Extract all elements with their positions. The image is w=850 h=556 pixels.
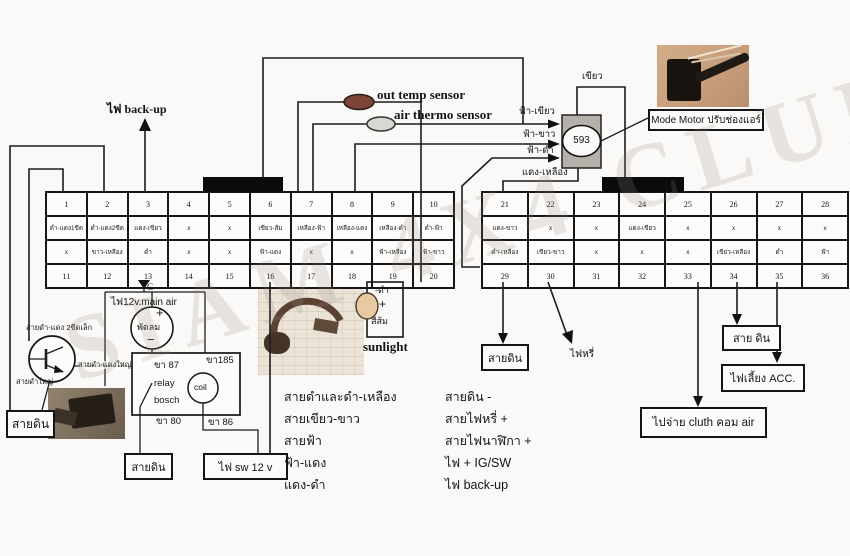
pin-number-cell: 31 (574, 264, 620, 288)
transistor-emitter (46, 365, 63, 372)
wire-color-cell: x (665, 240, 711, 264)
wire-color-cell: x (619, 240, 665, 264)
wire-color-cell: x (168, 240, 209, 264)
pin-number-cell: 35 (757, 264, 803, 288)
wire-color-cell: ดำ (128, 240, 169, 264)
pin-number-cell: 25 (665, 192, 711, 216)
wire-color-cell: แดง-เขียว (619, 216, 665, 240)
connector-table-left: 12345678910ดำ-แดง1ขีดดำ-แดง2ขีดแดง-เขียว… (45, 191, 455, 289)
arrow-ground-icon (498, 333, 508, 344)
note-line: สายเขียว-ขาว (284, 413, 397, 435)
wire-color-cell: x (168, 216, 209, 240)
pin-number-row: 2930313233343536 (482, 264, 848, 288)
pin-number-cell: 16 (250, 264, 291, 288)
note-line: สายไฟหรี่ + (445, 413, 532, 435)
wire-color-cell: x (209, 216, 250, 240)
wire-color-cell: ดำ-แดง1ขีด (46, 216, 87, 240)
wire-color-cell: ดำ (757, 240, 803, 264)
mode-motor-photo (657, 45, 749, 107)
sunlight-label: sunlight (363, 340, 408, 354)
wire-color-cell: ฟ้า (802, 240, 848, 264)
transistor-wire-small-label: สายดำ-แดง 2ขีดเล็ก (26, 324, 92, 332)
sw12v-box: ไฟ sw 12 v (203, 453, 288, 480)
wire-color-cell: เขียว-ขาว (528, 240, 574, 264)
blue-black-label: ฟ้า-ดำ (527, 146, 554, 156)
pin-number-cell: 12 (87, 264, 128, 288)
wire-color-cell: เหลือง-แดง (332, 216, 373, 240)
wire-color-cell: x (757, 216, 803, 240)
backup-arrow-icon (139, 118, 151, 131)
pin-number-cell: 2 (87, 192, 128, 216)
fan-plus-sign: + (156, 306, 164, 320)
relay-switch-symbol (140, 383, 152, 407)
transistor-symbol (29, 336, 75, 382)
pin-number-cell: 10 (413, 192, 454, 216)
relay-pin80-label: ขา 80 (156, 417, 181, 427)
note-line: สายฟ้า (284, 435, 397, 457)
coil-label: coil (194, 383, 207, 392)
ground-box-right: สาย ดิน (722, 325, 781, 351)
relay-brand-label: bosch (154, 396, 179, 406)
out-temp-sensor-symbol (344, 95, 374, 110)
transistor-wire-black-label: สายดำใหญ่ (16, 378, 53, 386)
pin-number-cell: 8 (332, 192, 373, 216)
wire-color-row: ดำ-แดง1ขีดดำ-แดง2ขีดแดง-เขียวxxเขียว-ส้ม… (46, 216, 454, 240)
wire-color-cell: เหลือง-ดำ (372, 216, 413, 240)
notes-list-right: สายดิน -สายไฟหรี่ +สายไฟนาฬิกา +ไฟ + IG/… (445, 391, 532, 501)
relay-photo (48, 388, 125, 439)
pin-number-cell: 5 (209, 192, 250, 216)
arrow-blue-green-icon (548, 120, 560, 129)
pin-number-cell: 18 (332, 264, 373, 288)
pin-number-cell: 28 (802, 192, 848, 216)
wire-air-thermo-left (313, 124, 367, 191)
red-yellow-label: แดง-เหลือง (522, 168, 568, 178)
wire-color-cell: x (332, 240, 373, 264)
sunlight-neg-label: -ดำ (375, 286, 389, 296)
sunlight-plus-label: + (379, 298, 386, 311)
dimmer-label: ไฟหรี่ (570, 349, 594, 360)
note-line: ฟ้า-แดง (284, 457, 397, 479)
connector-key-bar-right (602, 177, 684, 192)
pin-number-cell: 30 (528, 264, 574, 288)
wire-color-cell: x (528, 216, 574, 240)
pin-number-row: 11121314151617181920 (46, 264, 454, 288)
note-line: ไฟ + IG/SW (445, 457, 532, 479)
ground-box-pin29: สายดิน (481, 344, 529, 371)
connector-key-bar-left (203, 177, 283, 192)
pin-number-cell: 11 (46, 264, 87, 288)
wire-color-cell: ฟ้า-เหลือง (372, 240, 413, 264)
wire-color-cell: ดำ-เหลือง (482, 240, 528, 264)
blue-white-label: ฟ้า-ขาว (523, 130, 555, 140)
mode-motor-pointer-line (601, 118, 648, 141)
pin-number-cell: 36 (802, 264, 848, 288)
wire-color-cell: x (209, 240, 250, 264)
pin-number-cell: 33 (665, 264, 711, 288)
wire-color-cell: ดำ-ฟ้า (413, 216, 454, 240)
wire-color-cell: x (711, 216, 757, 240)
pin-number-cell: 14 (168, 264, 209, 288)
pin-number-cell: 15 (209, 264, 250, 288)
fan-minus-sign: − (147, 333, 155, 347)
node-593-value: 593 (566, 135, 597, 146)
fan-supply-label: ไฟ12v.main air (111, 297, 177, 308)
relay-pin87-label: ขา 87 (154, 361, 179, 371)
arrow-ground-right-icon (732, 314, 742, 325)
wire-pin30-dimmer (548, 282, 567, 335)
wire-color-cell: x (802, 216, 848, 240)
pin-number-cell: 23 (574, 192, 620, 216)
wire-color-cell: x (574, 240, 620, 264)
pin-number-cell: 4 (168, 192, 209, 216)
wire-color-cell: ฟ้า-แดง (250, 240, 291, 264)
transistor-wire-big-label: สายดำ-แดงใหญ่ (78, 361, 131, 369)
wire-color-cell: ฟ้า-ขาว (413, 240, 454, 264)
wire-color-row: ดำ-เหลืองเขียว-ขาวxxxเขียว-เหลืองดำฟ้า (482, 240, 848, 264)
pin-number-cell: 29 (482, 264, 528, 288)
wire-color-cell: ขาว-เหลือง (87, 240, 128, 264)
arrow-dimmer-icon (562, 330, 573, 344)
wire-color-cell: เขียว-ส้ม (250, 216, 291, 240)
relay-body-shape (68, 393, 116, 429)
notes-list-left: สายดำและดำ-เหลืองสายเขียว-ขาวสายฟ้าฟ้า-แ… (284, 391, 397, 501)
ground-marker-label: G (147, 283, 154, 293)
note-line: สายไฟนาฬิกา + (445, 435, 532, 457)
wiring-diagram-canvas: 12345678910ดำ-แดง1ขีดดำ-แดง2ขีดแดง-เขียว… (0, 0, 850, 556)
green-label: เขียว (582, 72, 603, 82)
pin-number-cell: 7 (291, 192, 332, 216)
wire-color-cell: x (46, 240, 87, 264)
pin-number-cell: 34 (711, 264, 757, 288)
sunlight-sensor-photo (258, 288, 364, 375)
wire-color-cell: ดำ-แดง2ขีด (87, 216, 128, 240)
note-line: สายดิน - (445, 391, 532, 413)
wire-color-cell: เหลือง-ฟ้า (291, 216, 332, 240)
pin-number-cell: 9 (372, 192, 413, 216)
wire-color-row: xขาว-เหลืองดำxxฟ้า-แดงxxฟ้า-เหลืองฟ้า-ขา… (46, 240, 454, 264)
out-temp-label: out temp sensor (377, 88, 465, 102)
wire-loop-blue-green (263, 58, 523, 191)
connector-table-right: 2122232425262728แดง-ขาวxxแดง-เขียวxxxxดำ… (481, 191, 849, 289)
wire-color-cell: x (665, 216, 711, 240)
note-line: ไฟ back-up (445, 479, 532, 501)
ground-box-mid: สายดิน (124, 453, 173, 480)
note-line: แดง-ดำ (284, 479, 397, 501)
transistor-collector (46, 347, 63, 354)
pin-number-cell: 17 (291, 264, 332, 288)
wire-color-cell: เขียว-เหลือง (711, 240, 757, 264)
blue-green-label: ฟ้า-เขียว (519, 107, 555, 117)
wire-color-cell: แดง-เขียว (128, 216, 169, 240)
pin-number-cell: 22 (528, 192, 574, 216)
mode-motor-label-box: Mode Motor ปรับช่องแอร์ (648, 109, 764, 131)
pin-number-cell: 27 (757, 192, 803, 216)
wire-color-cell: x (291, 240, 332, 264)
pin-number-cell: 1 (46, 192, 87, 216)
pin-number-row: 2122232425262728 (482, 192, 848, 216)
pin-number-cell: 20 (413, 264, 454, 288)
relay-name-label: relay (154, 379, 175, 389)
pin-number-cell: 6 (250, 192, 291, 216)
relay-pin86-label: ขา 86 (208, 418, 233, 428)
arrow-clutch-icon (693, 396, 703, 407)
wire-out-temp-left (298, 102, 344, 191)
arrow-acc-icon (772, 352, 782, 363)
pin-number-cell: 32 (619, 264, 665, 288)
pin-number-cell: 26 (711, 192, 757, 216)
sunlight-color-label: สีส้ม (371, 317, 388, 327)
wire-color-row: แดง-ขาวxxแดง-เขียวxxxx (482, 216, 848, 240)
pin-number-row: 12345678910 (46, 192, 454, 216)
transistor-emitter-arrow-icon (54, 365, 64, 373)
relay-pin85-label: ขา185 (206, 356, 234, 366)
sensor-head-shape (264, 332, 290, 354)
clutch-feed-box: ไปจ่าย cluth คอม air (640, 407, 767, 438)
wire-color-cell: แดง-ขาว (482, 216, 528, 240)
wire-color-cell: x (574, 216, 620, 240)
air-thermo-sensor-symbol (367, 117, 395, 131)
acc-box: ไฟเลี้ยง ACC. (721, 364, 805, 392)
air-thermo-label: air thermo sensor (394, 108, 492, 122)
backup-label: ไฟ back-up (107, 103, 167, 116)
pin-number-cell: 21 (482, 192, 528, 216)
pin-number-cell: 3 (128, 192, 169, 216)
note-line: สายดำและดำ-เหลือง (284, 391, 397, 413)
pin-number-cell: 24 (619, 192, 665, 216)
ground-box-left: สายดิน (6, 410, 55, 438)
